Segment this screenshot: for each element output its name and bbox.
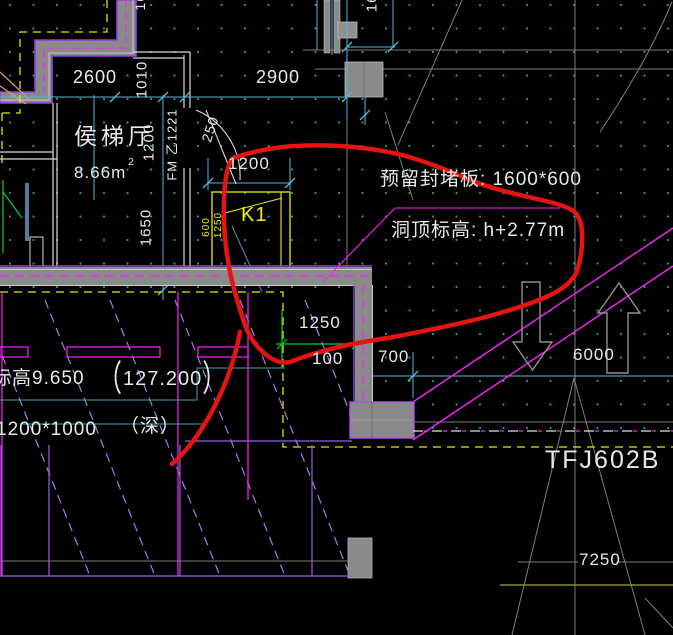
grid-dots [0, 0, 673, 450]
cad-drawing: 2600 1010 2900 1680 1600 侯梯厅 8.66m2 1200… [0, 0, 673, 635]
green-dimension [276, 310, 362, 368]
floor-plan-canvas [0, 0, 673, 635]
